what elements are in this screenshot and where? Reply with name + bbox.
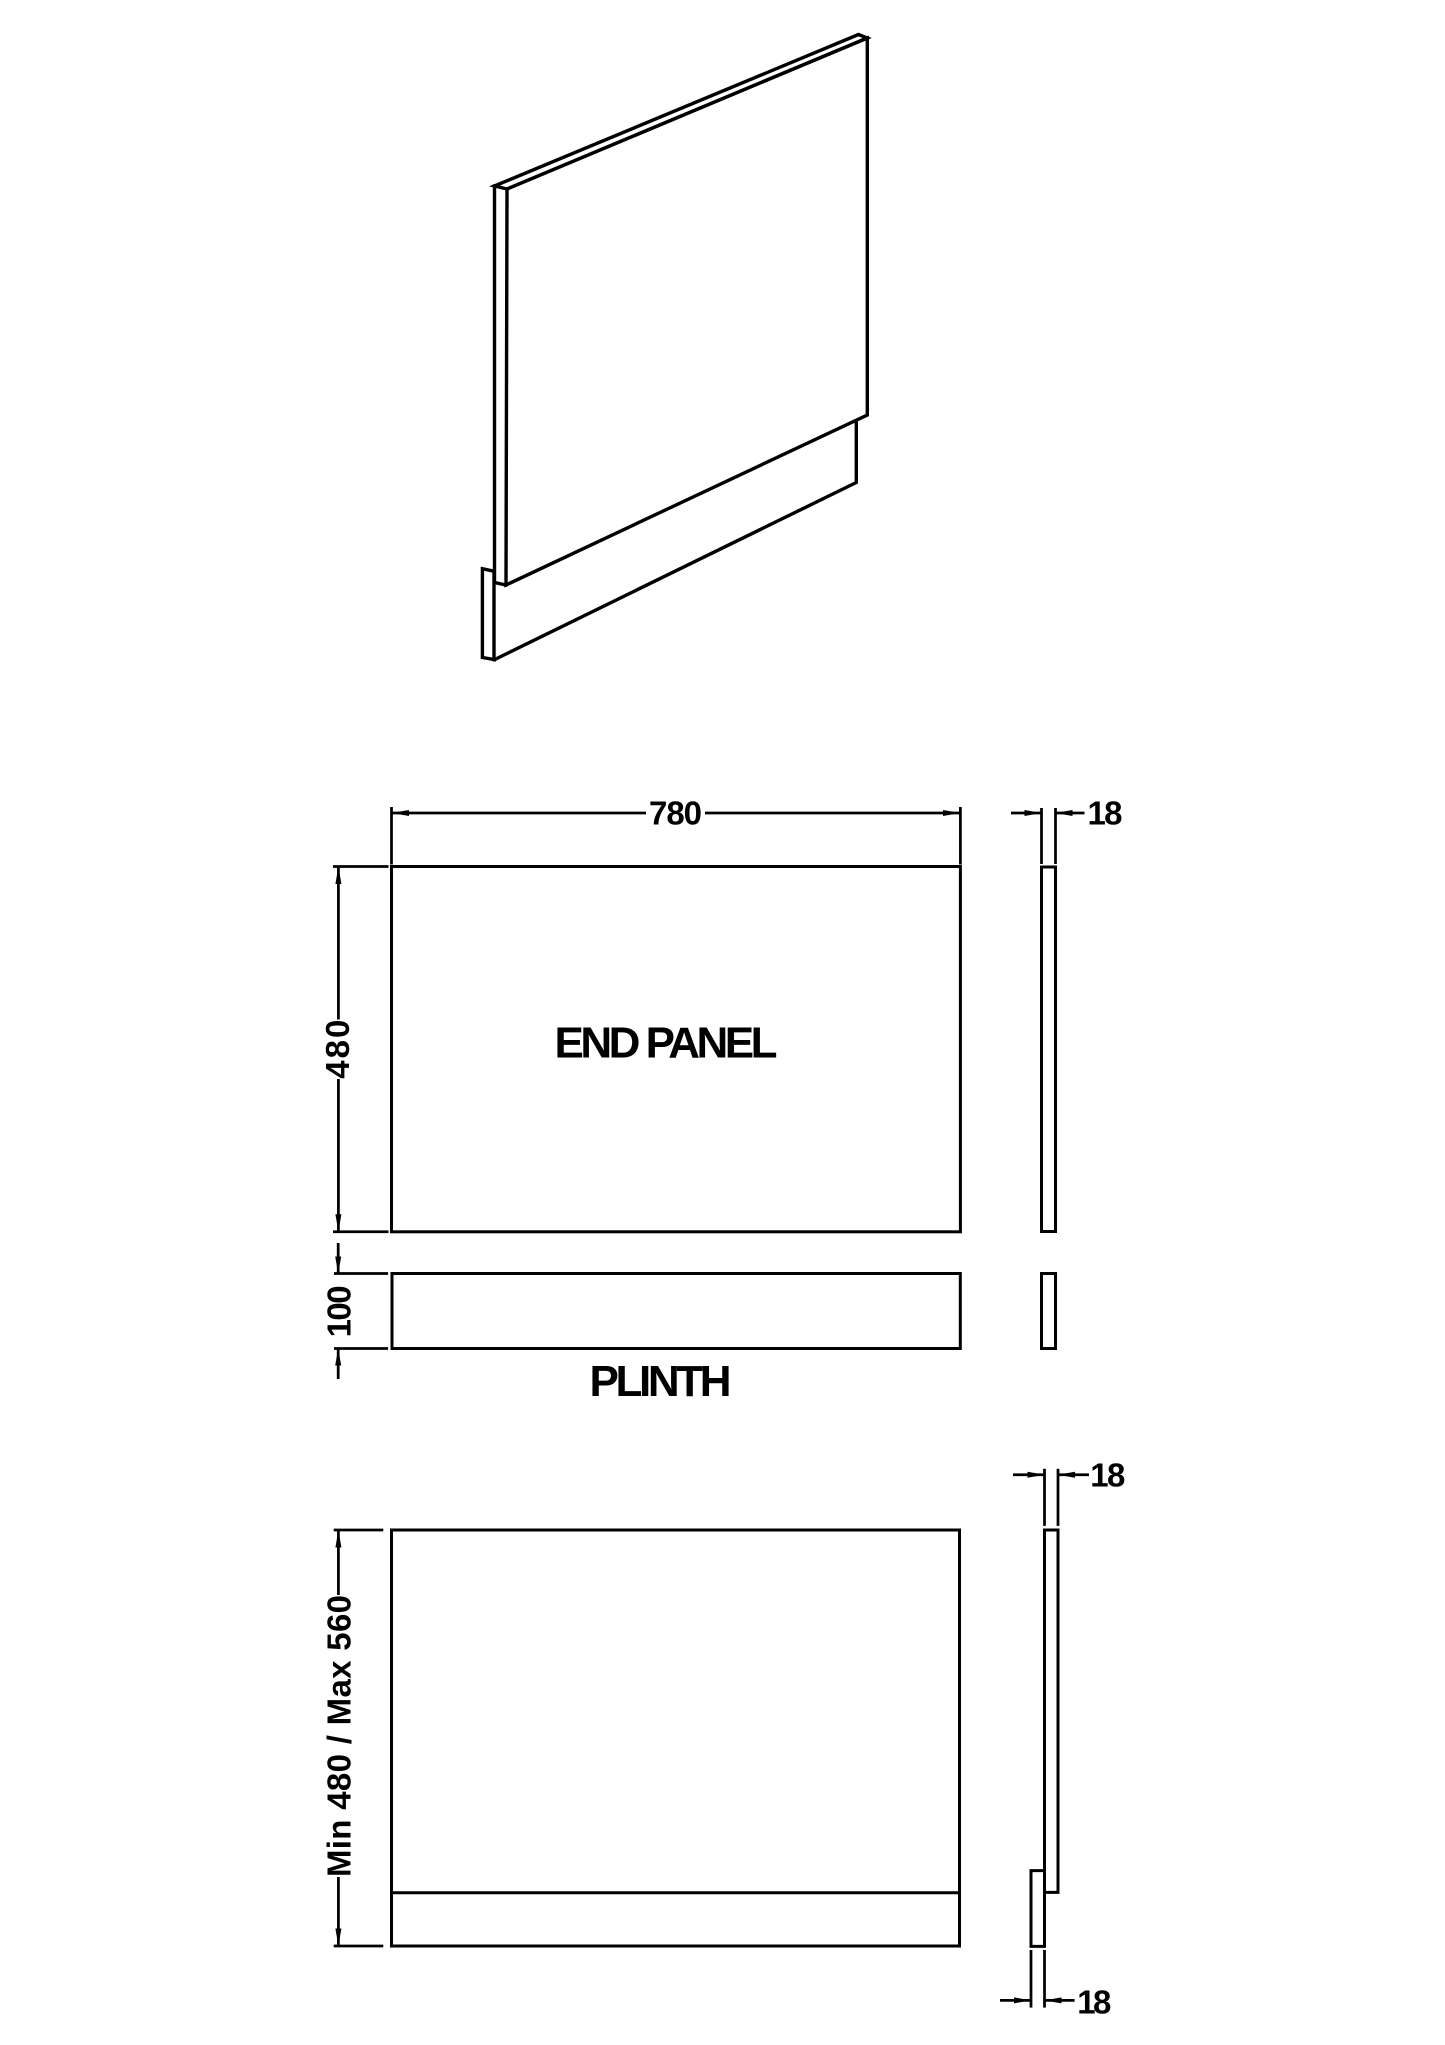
svg-text:18: 18 (1077, 1983, 1111, 2020)
svg-text:Min 480 / Max 560: Min 480 / Max 560 (321, 1595, 358, 1877)
svg-text:480: 480 (319, 1020, 356, 1079)
svg-text:18: 18 (1088, 795, 1123, 832)
svg-text:PLINTH: PLINTH (590, 1357, 732, 1406)
svg-text:18: 18 (1090, 1456, 1125, 1493)
svg-text:100: 100 (321, 1285, 358, 1337)
svg-text:780: 780 (649, 795, 702, 832)
svg-text:END PANEL: END PANEL (555, 1019, 778, 1068)
